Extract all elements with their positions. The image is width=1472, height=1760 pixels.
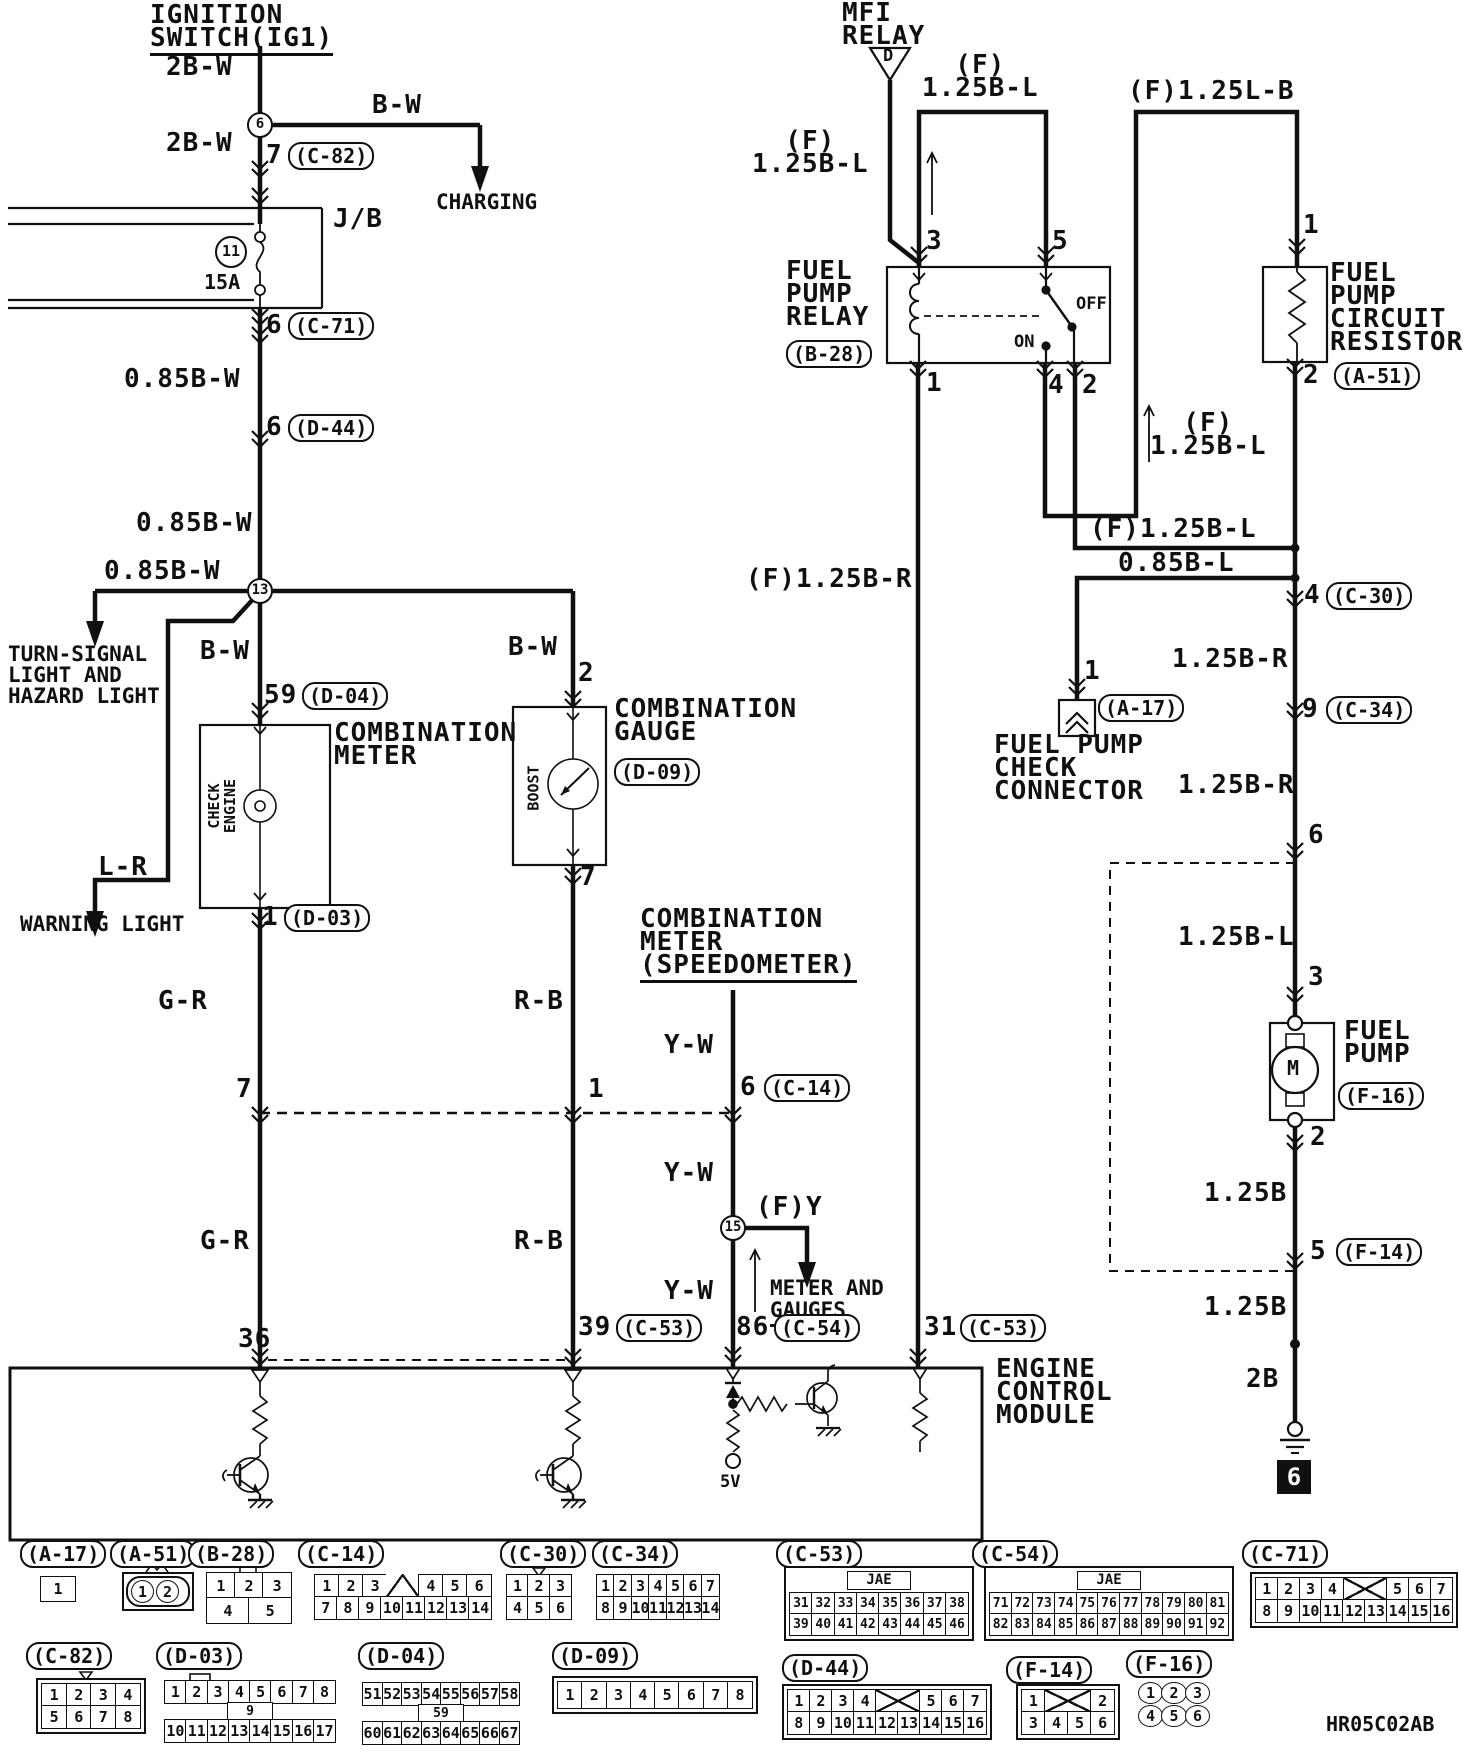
pin-cell: 15 bbox=[1408, 1599, 1431, 1623]
pin-cell: 44 bbox=[900, 1613, 924, 1636]
boost-gauge-icon bbox=[548, 707, 598, 865]
pin-cell: 6 bbox=[549, 1596, 572, 1620]
wire-f125bl-riser: (F) 1.25B-L bbox=[1150, 412, 1267, 458]
wire-bw-charging: B-W bbox=[372, 94, 422, 117]
pin-cell: 3 bbox=[549, 1574, 572, 1598]
pin-cell: 10 bbox=[831, 1711, 855, 1735]
pin-cell: 2 bbox=[613, 1574, 632, 1598]
resistor-title: FUEL PUMP CIRCUIT RESISTOR bbox=[1330, 262, 1463, 354]
connector-label-C-82: (C-82) bbox=[26, 1642, 112, 1670]
pin-cell: 2 bbox=[66, 1683, 92, 1707]
connector-pinout-C-71: 12345678910111213141516 bbox=[1250, 1572, 1458, 1628]
pin-cell: 9 bbox=[227, 1702, 273, 1720]
pin-5-relay: 5 bbox=[1052, 230, 1069, 253]
pin-cell: 4 bbox=[630, 1681, 656, 1709]
pin-cell: 54 bbox=[421, 1682, 442, 1706]
blocked-cell bbox=[875, 1689, 920, 1713]
pin-cell: 4 bbox=[648, 1574, 667, 1598]
pin-cell: 2 bbox=[185, 1680, 208, 1704]
fuse-rating: 15A bbox=[204, 272, 240, 292]
pin-cell: 87 bbox=[1097, 1613, 1120, 1636]
pin-cell: 4 bbox=[1321, 1577, 1344, 1601]
pin-cell: 7 bbox=[701, 1574, 720, 1598]
pin-2-gauge: 2 bbox=[578, 662, 595, 685]
pin-cell: 2 bbox=[1277, 1577, 1300, 1601]
connector-pinout-D-03: 1234567891011121314151617 bbox=[164, 1680, 336, 1743]
pin-cell: 2 bbox=[809, 1689, 833, 1713]
fuel-pump-relay-title: FUEL PUMP RELAY bbox=[786, 260, 869, 329]
pin-cell: 83 bbox=[1011, 1613, 1034, 1636]
connector-pinout-C-14: 1234567891011121314 bbox=[314, 1574, 492, 1620]
node-6: 6 bbox=[247, 112, 273, 138]
conn-c53-ref-31: (C-53) bbox=[960, 1314, 1046, 1342]
pin-cell: 3 bbox=[90, 1683, 116, 1707]
node-13: 13 bbox=[247, 578, 273, 604]
pin-cell: 16 bbox=[1430, 1599, 1453, 1623]
speedometer-title: COMBINATION METER (SPEEDOMETER) bbox=[640, 908, 857, 983]
pin-cell: 79 bbox=[1162, 1592, 1185, 1615]
pin-cell: 3 bbox=[1299, 1577, 1322, 1601]
pin-cell: 66 bbox=[479, 1721, 500, 1745]
fuel-pump-box bbox=[1270, 1016, 1334, 1127]
pin-cell: 11 bbox=[1320, 1599, 1343, 1623]
jb-label: J/B bbox=[333, 208, 383, 231]
relay-on: ON bbox=[1014, 334, 1034, 351]
pin-cell: 1 bbox=[164, 1680, 187, 1704]
pin-cell: 41 bbox=[834, 1613, 858, 1636]
pin-1-c14: 1 bbox=[588, 1078, 605, 1101]
connector-label-C-54: (C-54) bbox=[972, 1540, 1058, 1568]
fp-check-title: FUEL PUMP CHECK CONNECTOR bbox=[994, 734, 1144, 803]
connector-label-F-14: (F-14) bbox=[1006, 1656, 1092, 1684]
pin-cell: 56 bbox=[460, 1682, 481, 1706]
pin-cell: 71 bbox=[989, 1592, 1012, 1615]
pin-cell: 89 bbox=[1141, 1613, 1164, 1636]
pin-cell: 1 bbox=[40, 1576, 76, 1602]
conn-d44-ref: (D-44) bbox=[288, 414, 374, 442]
pin-cell: 77 bbox=[1119, 1592, 1142, 1615]
pin-cell: 40 bbox=[811, 1613, 835, 1636]
pin-cell: 51 bbox=[362, 1682, 383, 1706]
pin-cell: 3 bbox=[262, 1572, 292, 1599]
pin-cell: 6 bbox=[66, 1705, 92, 1729]
connector-label-C-14: (C-14) bbox=[298, 1540, 384, 1568]
connector-label-D-09: (D-09) bbox=[552, 1642, 638, 1670]
pin-cell: 12 bbox=[666, 1596, 685, 1620]
pin-cell: 74 bbox=[1054, 1592, 1077, 1615]
pin-5-f14: 5 bbox=[1310, 1240, 1327, 1263]
conn-a51-ref: (A-51) bbox=[1334, 362, 1420, 390]
relay-coil-icon bbox=[910, 284, 919, 334]
conn-c82-ref: (C-82) bbox=[288, 142, 374, 170]
pin-6-tank: 6 bbox=[1308, 824, 1325, 847]
pin-cell: 7 bbox=[1430, 1577, 1453, 1601]
pin-cell: 8 bbox=[727, 1681, 753, 1709]
pin-6-c14: 6 bbox=[740, 1076, 757, 1099]
wire-f125br: (F)1.25B-R bbox=[746, 568, 913, 591]
wire-f125bl-mfi: (F) 1.25B-L bbox=[752, 130, 869, 176]
connector-label-A-17: (A-17) bbox=[20, 1540, 106, 1568]
wire-lr: L-R bbox=[98, 856, 148, 879]
conn-c53-ref-39: (C-53) bbox=[616, 1314, 702, 1342]
connector-brand-tab: JAE bbox=[1077, 1571, 1141, 1590]
conn-f14-ref: (F-14) bbox=[1336, 1238, 1422, 1266]
pin-cell: 85 bbox=[1054, 1613, 1077, 1636]
wire-085bl: 0.85B-L bbox=[1118, 552, 1235, 575]
pin-cell: 34 bbox=[856, 1592, 880, 1615]
connector-label-F-16: (F-16) bbox=[1126, 1650, 1212, 1678]
pin-cell: 7 bbox=[90, 1705, 116, 1729]
pin-cell: 84 bbox=[1032, 1613, 1055, 1636]
pin-cell: 42 bbox=[856, 1613, 880, 1636]
pin-cell: 2 bbox=[1090, 1689, 1115, 1713]
wire-gr-1: G-R bbox=[158, 990, 208, 1013]
pin-cell: 6 bbox=[941, 1689, 965, 1713]
wire-bw-gauge: B-W bbox=[508, 636, 558, 659]
pin-1-d03: 1 bbox=[262, 906, 279, 929]
mfi-relay-title: MFI RELAY bbox=[842, 2, 925, 48]
pin-cell: 4 bbox=[206, 1597, 250, 1624]
pin-cell: 7 bbox=[963, 1689, 987, 1713]
pin-36: 36 bbox=[238, 1328, 271, 1351]
connector-label-C-53: (C-53) bbox=[776, 1540, 862, 1568]
pin-cell: 43 bbox=[878, 1613, 902, 1636]
conn-c54-ref: (C-54) bbox=[774, 1314, 860, 1342]
wire-125br-1: 1.25B-R bbox=[1172, 648, 1289, 671]
pin-cell: 4 bbox=[1044, 1711, 1069, 1735]
pin-cell: 78 bbox=[1141, 1592, 1164, 1615]
pin-cell: 2 bbox=[234, 1572, 264, 1599]
resistor-zigzag-icon bbox=[1289, 267, 1305, 362]
connector-label-C-71: (C-71) bbox=[1242, 1540, 1328, 1568]
pin-cell: 6 bbox=[1185, 1705, 1210, 1727]
pin-cell: 17 bbox=[313, 1719, 336, 1743]
pin-cell: 58 bbox=[499, 1682, 520, 1706]
pin-cell: 14 bbox=[249, 1719, 272, 1743]
pin-cell: 5 bbox=[1067, 1711, 1092, 1735]
relay-off: OFF bbox=[1076, 296, 1107, 313]
wire-2bw-2: 2B-W bbox=[166, 132, 233, 155]
pin-cell: 1 bbox=[314, 1574, 340, 1598]
connector-label-D-03: (D-03) bbox=[156, 1642, 242, 1670]
wire-085bw-2: 0.85B-W bbox=[136, 512, 253, 535]
pin-cell: 39 bbox=[789, 1613, 813, 1636]
connector-label-D-44: (D-44) bbox=[782, 1654, 868, 1682]
pin-cell: 9 bbox=[613, 1596, 632, 1620]
pin-cell: 36 bbox=[900, 1592, 924, 1615]
pin-39: 39 bbox=[578, 1316, 611, 1339]
pin-cell: 12 bbox=[875, 1711, 899, 1735]
pin-cell: 14 bbox=[919, 1711, 943, 1735]
pin-cell: 90 bbox=[1162, 1613, 1185, 1636]
charging-arrow-icon bbox=[471, 166, 489, 192]
pin-cell: 65 bbox=[460, 1721, 481, 1745]
pin-86: 86 bbox=[736, 1316, 769, 1339]
pin-cell: 1 bbox=[1255, 1577, 1278, 1601]
conn-c14-ref: (C-14) bbox=[764, 1074, 850, 1102]
pin-cell: 2 bbox=[338, 1574, 364, 1598]
connector-brand-tab: JAE bbox=[847, 1571, 911, 1590]
pump-motor-m: M bbox=[1287, 1058, 1299, 1078]
pin-cell: 15 bbox=[270, 1719, 293, 1743]
wire-125br-2: 1.25B-R bbox=[1178, 774, 1295, 797]
ecm-driver-39 bbox=[536, 1370, 586, 1508]
conn-c71-ref: (C-71) bbox=[288, 312, 374, 340]
pin-cell: 7 bbox=[703, 1681, 729, 1709]
wire-f125bl-top: (F) 1.25B-L bbox=[922, 54, 1039, 100]
pin-1-a17: 1 bbox=[1084, 660, 1101, 683]
pin-cell: 4 bbox=[1138, 1705, 1163, 1727]
pin-2-pump: 2 bbox=[1310, 1126, 1327, 1149]
conn-c30-ref: (C-30) bbox=[1326, 582, 1412, 610]
pin-cell: 1 bbox=[1021, 1689, 1046, 1713]
ecm-input-31 bbox=[913, 1368, 927, 1452]
connector-pinout-A-17: 1 bbox=[40, 1576, 76, 1602]
pin-cell: 60 bbox=[362, 1721, 383, 1745]
pin-cell: 5 bbox=[248, 1597, 292, 1624]
pin-cell: 4 bbox=[853, 1689, 877, 1713]
pin-cell: 10 bbox=[631, 1596, 650, 1620]
wire-125b-2: 1.25B bbox=[1204, 1296, 1287, 1319]
fuel-pump-relay-box bbox=[887, 267, 1110, 363]
pin-cell: 12 bbox=[424, 1596, 448, 1620]
pin-cell: 45 bbox=[923, 1613, 947, 1636]
connector-pinout-C-82: 12345678 bbox=[36, 1678, 146, 1734]
pin-4-relay: 4 bbox=[1048, 374, 1065, 397]
wire-125bl-tank: 1.25B-L bbox=[1178, 926, 1295, 949]
notch-cell bbox=[386, 1574, 419, 1598]
pin-cell: 1 bbox=[1138, 1682, 1163, 1704]
wire-f125bl-horiz: (F)1.25B-L bbox=[1090, 518, 1257, 541]
pin-cell: 82 bbox=[989, 1613, 1012, 1636]
ground-ref-6: 6 bbox=[1277, 1460, 1311, 1494]
pin-cell: 5 bbox=[654, 1681, 680, 1709]
conn-d03-ref: (D-03) bbox=[284, 904, 370, 932]
pin-7-c82: 7 bbox=[266, 144, 283, 167]
conn-f16-ref: (F-16) bbox=[1338, 1082, 1424, 1110]
wire-bw-meter: B-W bbox=[200, 640, 250, 663]
pin-cell: 80 bbox=[1184, 1592, 1207, 1615]
pin-cell: 8 bbox=[1255, 1599, 1278, 1623]
pin-cell: 61 bbox=[382, 1721, 403, 1745]
warning-light-dest: WARNING LIGHT bbox=[20, 914, 184, 935]
connector-pinout-C-34: 1234567891011121314 bbox=[596, 1574, 720, 1620]
pin-cell: 10 bbox=[380, 1596, 404, 1620]
connector-pinout-D-09: 12345678 bbox=[552, 1676, 758, 1714]
pin-1-resistor: 1 bbox=[1303, 214, 1320, 237]
pin-cell: 13 bbox=[446, 1596, 470, 1620]
pin-cell: 12 bbox=[1342, 1599, 1365, 1623]
pin-cell: 6 bbox=[466, 1574, 492, 1598]
pin-cell: 11 bbox=[853, 1711, 877, 1735]
pin-cell: 8 bbox=[596, 1596, 615, 1620]
ecm-input-86 bbox=[725, 1365, 841, 1468]
pin-cell: 31 bbox=[789, 1592, 813, 1615]
pin-cell: 13 bbox=[683, 1596, 702, 1620]
pin-cell: 2 bbox=[581, 1681, 607, 1709]
pin-4-c30: 4 bbox=[1304, 584, 1321, 607]
pin-6-c71: 6 bbox=[266, 314, 283, 337]
relay-switch-icon bbox=[1043, 287, 1076, 364]
pin-cell: 16 bbox=[963, 1711, 987, 1735]
pin-cell: 88 bbox=[1119, 1613, 1142, 1636]
pin-cell: 55 bbox=[440, 1682, 461, 1706]
pin-cell: 91 bbox=[1184, 1613, 1207, 1636]
pin-cell: 59 bbox=[418, 1704, 464, 1722]
wire-2bw-1: 2B-W bbox=[166, 56, 233, 79]
pin-cell: 92 bbox=[1206, 1613, 1229, 1636]
pin-cell: 14 bbox=[1386, 1599, 1409, 1623]
blocked-cell bbox=[1343, 1577, 1388, 1601]
connector-pinout-F-14: 123456 bbox=[1016, 1684, 1120, 1740]
pin-cell: 4 bbox=[506, 1596, 529, 1620]
wire-125b-1: 1.25B bbox=[1204, 1182, 1287, 1205]
pin-cell: 1 bbox=[506, 1574, 529, 1598]
connector-pinout-B-28: 12345 bbox=[206, 1572, 292, 1624]
pin-cell: 1 bbox=[787, 1689, 811, 1713]
pin-cell: 76 bbox=[1097, 1592, 1120, 1615]
check-engine-lamp-icon bbox=[244, 725, 276, 908]
wire-rb-2: R-B bbox=[514, 1230, 564, 1253]
pin-cell: 10 bbox=[164, 1719, 187, 1743]
check-engine-label: CHECK ENGINE bbox=[206, 779, 238, 833]
pin-cell: 86 bbox=[1076, 1613, 1099, 1636]
connector-label-C-30: (C-30) bbox=[500, 1540, 586, 1568]
pin-cell: 13 bbox=[897, 1711, 921, 1735]
pin-cell: 3 bbox=[606, 1681, 632, 1709]
pin-cell: 5 bbox=[249, 1680, 272, 1704]
pin-cell: 1 bbox=[557, 1681, 583, 1709]
conn-c34-ref: (C-34) bbox=[1326, 696, 1412, 724]
pin-cell: 14 bbox=[701, 1596, 720, 1620]
node-15: 15 bbox=[720, 1215, 746, 1241]
pin-cell: 63 bbox=[421, 1721, 442, 1745]
pin-cell: 57 bbox=[479, 1682, 500, 1706]
ecm-title: ENGINE CONTROL MODULE bbox=[996, 1358, 1113, 1427]
ecm-driver-36 bbox=[223, 1370, 273, 1508]
mfi-triangle-d: D bbox=[883, 48, 893, 65]
conn-b28-ref: (B-28) bbox=[786, 340, 872, 368]
pin-cell: 12 bbox=[207, 1719, 230, 1743]
conn-a17-ref: (A-17) bbox=[1098, 694, 1184, 722]
wire-mfi-coil-feed bbox=[890, 80, 919, 267]
pin-cell: 3 bbox=[207, 1680, 230, 1704]
connector-pinout-C-54: JAE7172737475767778798081828384858687888… bbox=[984, 1566, 1234, 1641]
pin-cell: 3 bbox=[831, 1689, 855, 1713]
pin-cell: 6 bbox=[683, 1574, 702, 1598]
pin-cell: 1 bbox=[41, 1683, 67, 1707]
pin-1-relay: 1 bbox=[926, 372, 943, 395]
wire-yw-2: Y-W bbox=[664, 1162, 714, 1185]
pin-cell: 5 bbox=[666, 1574, 685, 1598]
pin-cell: 5 bbox=[41, 1705, 67, 1729]
pin-cell: 6 bbox=[678, 1681, 704, 1709]
pin-cell: 5 bbox=[1161, 1705, 1186, 1727]
connector-label-B-28: (B-28) bbox=[188, 1540, 274, 1568]
wire-yw-3: Y-W bbox=[664, 1280, 714, 1303]
wire-yw-1: Y-W bbox=[664, 1034, 714, 1057]
connector-pinout-C-53: JAE31323334353637383940414243444546 bbox=[784, 1566, 974, 1641]
pin-cell: 9 bbox=[809, 1711, 833, 1735]
conn-d04-ref: (D-04) bbox=[302, 682, 388, 710]
meter-gauges-dest: METER AND bbox=[770, 1278, 884, 1299]
pin-cell: 1 bbox=[131, 1580, 154, 1603]
pin-cell: 11 bbox=[185, 1719, 208, 1743]
pin-3-pump: 3 bbox=[1308, 966, 1325, 989]
connector-label-C-34: (C-34) bbox=[592, 1540, 678, 1568]
turn-signal-dest: TURN-SIGNAL LIGHT AND HAZARD LIGHT bbox=[8, 644, 160, 707]
drawing-code: HR05C02AB bbox=[1326, 1714, 1434, 1734]
connector-pinout-A-51: 12 bbox=[122, 1572, 194, 1611]
pin-cell: 8 bbox=[787, 1711, 811, 1735]
pin-cell: 35 bbox=[878, 1592, 902, 1615]
wire-085bw-1: 0.85B-W bbox=[124, 368, 241, 391]
pin-cell: 53 bbox=[401, 1682, 422, 1706]
ecm-box bbox=[10, 1365, 982, 1540]
pin-cell: 6 bbox=[1090, 1711, 1115, 1735]
pin-cell: 1 bbox=[596, 1574, 615, 1598]
pin-9-c34: 9 bbox=[1302, 698, 1319, 721]
combination-gauge-title: COMBINATION GAUGE bbox=[614, 698, 797, 744]
ecm-5v: 5V bbox=[720, 1474, 740, 1491]
pin-cell: 5 bbox=[1386, 1577, 1409, 1601]
pin-cell: 72 bbox=[1011, 1592, 1034, 1615]
wire-check-connector bbox=[1077, 578, 1295, 700]
pin-cell: 37 bbox=[923, 1592, 947, 1615]
pin-cell: 5 bbox=[919, 1689, 943, 1713]
pin-cell: 4 bbox=[115, 1683, 141, 1707]
pin-cell: 9 bbox=[358, 1596, 382, 1620]
pin-cell: 13 bbox=[1364, 1599, 1387, 1623]
fuse-symbol bbox=[255, 224, 265, 308]
pin-cell: 4 bbox=[228, 1680, 251, 1704]
pin-cell: 3 bbox=[1021, 1711, 1046, 1735]
pin-7-c14: 7 bbox=[236, 1078, 253, 1101]
wire-085bw-3: 0.85B-W bbox=[104, 560, 221, 583]
pin-cell: 15 bbox=[941, 1711, 965, 1735]
connector-pinout-F-16: 123456 bbox=[1138, 1682, 1210, 1727]
pin-cell: 62 bbox=[401, 1721, 422, 1745]
pin-cell: 11 bbox=[402, 1596, 426, 1620]
pin-cell: 7 bbox=[292, 1680, 315, 1704]
pin-cell: 46 bbox=[945, 1613, 969, 1636]
wire-fy: (F)Y bbox=[756, 1196, 823, 1219]
pin-cell: 3 bbox=[631, 1574, 650, 1598]
pin-cell: 10 bbox=[1299, 1599, 1322, 1623]
boost-label: BOOST bbox=[526, 765, 542, 810]
pin-cell: 9 bbox=[1277, 1599, 1300, 1623]
wire-rb-1: R-B bbox=[514, 990, 564, 1013]
pin-cell: 7 bbox=[314, 1596, 338, 1620]
charging-dest: CHARGING bbox=[436, 192, 537, 213]
pin-cell: 67 bbox=[499, 1721, 520, 1745]
pin-cell: 3 bbox=[362, 1574, 388, 1598]
pin-cell: 81 bbox=[1206, 1592, 1229, 1615]
pin-cell: 2 bbox=[527, 1574, 550, 1598]
pin-2-relay: 2 bbox=[1082, 374, 1099, 397]
connector-label-A-51: (A-51) bbox=[110, 1540, 196, 1568]
pin-31: 31 bbox=[924, 1316, 957, 1339]
fuse-circle-11: 11 bbox=[215, 236, 247, 268]
connector-pinout-D-04: 5152535455565758596061626364656667 bbox=[362, 1682, 520, 1745]
pin-cell: 6 bbox=[270, 1680, 293, 1704]
fp-circuit-resistor-box bbox=[1263, 267, 1327, 362]
pin-cell: 2 bbox=[156, 1580, 179, 1603]
jb-junction-block bbox=[8, 208, 322, 308]
wire-f125lb: (F)1.25L-B bbox=[1128, 80, 1295, 103]
wire-2b: 2B bbox=[1246, 1368, 1279, 1391]
pin-cell: 13 bbox=[228, 1719, 251, 1743]
